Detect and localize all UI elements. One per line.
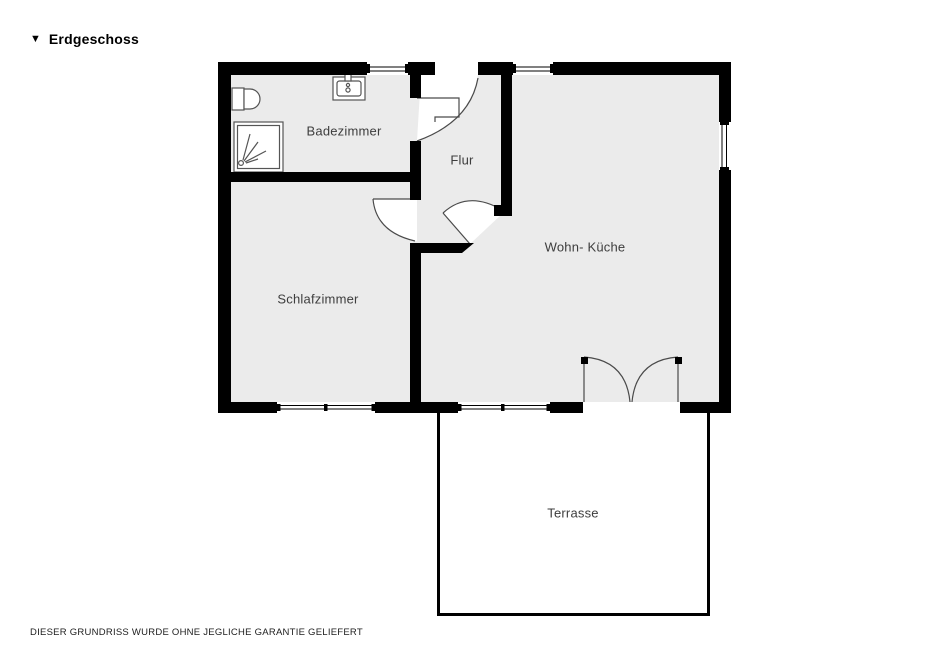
bath-top-window bbox=[367, 62, 408, 75]
kitchen-top-window bbox=[513, 62, 553, 75]
disclaimer-text: DIESER GRUNDRISS WURDE OHNE JEGLICHE GAR… bbox=[30, 627, 363, 638]
kitchen-right-window bbox=[719, 122, 731, 170]
bedroom-bottom-window bbox=[277, 402, 375, 413]
room-label-schlafzimmer: Schlafzimmer bbox=[277, 292, 358, 307]
floor-plan-page: ▼ Erdgeschoss bbox=[0, 0, 950, 671]
kitchen-bottom-window bbox=[458, 402, 550, 413]
room-label-wohn-kueche: Wohn- Küche bbox=[545, 240, 626, 255]
room-label-flur: Flur bbox=[450, 153, 473, 168]
room-label-terrasse: Terrasse bbox=[547, 506, 598, 521]
room-label-badezimmer: Badezimmer bbox=[307, 124, 382, 139]
floor-plan-drawing bbox=[0, 0, 950, 671]
shower-icon bbox=[234, 122, 283, 172]
toilet-icon bbox=[232, 88, 260, 110]
